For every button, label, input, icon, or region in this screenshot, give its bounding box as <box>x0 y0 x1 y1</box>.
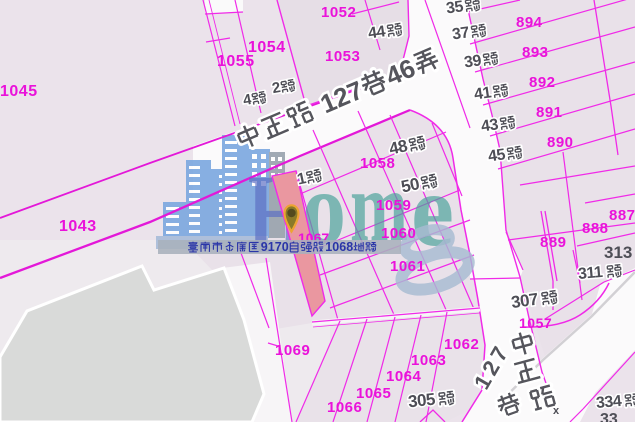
svg-text:1059: 1059 <box>376 197 411 214</box>
svg-text:1062: 1062 <box>444 336 479 353</box>
svg-text:1057: 1057 <box>519 315 552 331</box>
svg-text:1043: 1043 <box>59 218 97 235</box>
svg-text:889: 889 <box>540 234 567 251</box>
svg-text:1064: 1064 <box>386 368 422 385</box>
svg-text:311: 311 <box>577 264 603 283</box>
svg-text:307: 307 <box>510 290 539 313</box>
svg-text:43: 43 <box>480 116 500 135</box>
svg-text:1061: 1061 <box>390 258 425 275</box>
svg-text:41: 41 <box>473 84 493 103</box>
svg-text:334: 334 <box>595 393 622 412</box>
svg-text:893: 893 <box>522 44 549 61</box>
svg-text:6: 6 <box>339 240 346 254</box>
svg-text:7: 7 <box>275 240 282 254</box>
svg-text:x: x <box>553 405 560 417</box>
svg-text:1: 1 <box>325 240 332 254</box>
svg-text:888: 888 <box>582 220 609 237</box>
svg-text:887: 887 <box>609 207 635 224</box>
svg-text:0: 0 <box>282 240 289 254</box>
svg-text:44: 44 <box>367 23 387 42</box>
svg-text:894: 894 <box>516 14 543 31</box>
svg-text:1: 1 <box>268 240 275 254</box>
svg-text:890: 890 <box>547 134 574 151</box>
svg-text:1069: 1069 <box>275 342 310 359</box>
svg-text:45: 45 <box>487 146 507 165</box>
svg-text:0: 0 <box>332 240 339 254</box>
svg-text:35: 35 <box>445 0 465 17</box>
svg-text:1063: 1063 <box>411 352 446 369</box>
svg-text:1054: 1054 <box>248 39 286 56</box>
svg-text:1066: 1066 <box>327 399 362 416</box>
svg-text:39: 39 <box>463 52 483 71</box>
svg-text:892: 892 <box>529 74 556 91</box>
svg-text:1060: 1060 <box>381 225 416 242</box>
svg-text:1045: 1045 <box>0 83 38 100</box>
svg-text:1053: 1053 <box>325 48 360 65</box>
svg-text:1052: 1052 <box>321 4 356 21</box>
svg-text:33: 33 <box>600 411 618 422</box>
svg-text:9: 9 <box>261 240 268 254</box>
svg-text:37: 37 <box>451 24 471 43</box>
svg-text:313: 313 <box>604 243 632 262</box>
svg-text:305: 305 <box>407 390 436 412</box>
svg-text:891: 891 <box>536 104 563 121</box>
svg-text:1058: 1058 <box>360 155 395 172</box>
svg-text:8: 8 <box>346 240 353 254</box>
